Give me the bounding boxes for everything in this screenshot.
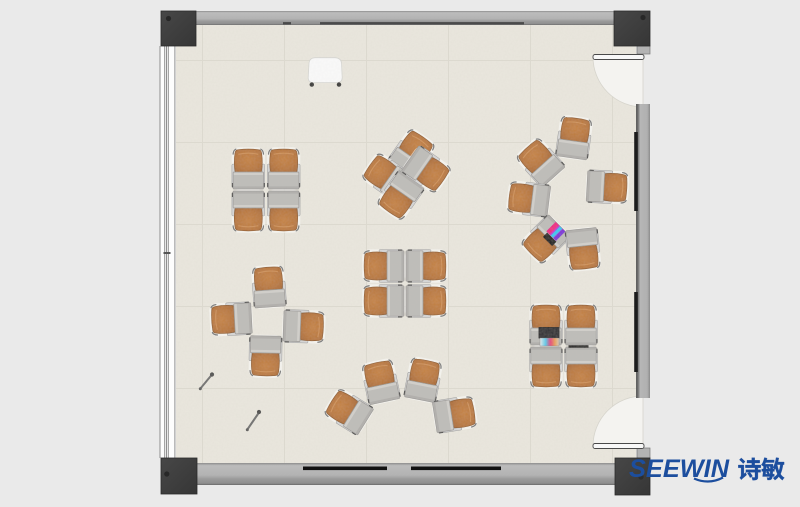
svg-text:SEEWIN: SEEWIN	[629, 455, 730, 483]
